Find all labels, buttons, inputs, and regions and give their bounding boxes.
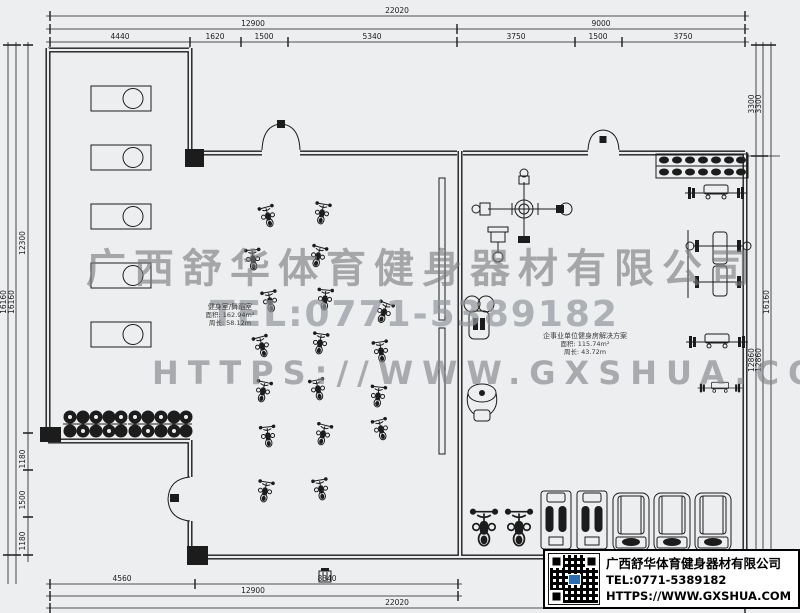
squat-machine-icon [541, 491, 571, 549]
dumbbell-rack-icon [656, 154, 748, 178]
dim-label: 4560 [112, 574, 131, 583]
dim-label: 1620 [205, 32, 224, 41]
room-name: 健身室/舞蹈室 [192, 303, 268, 311]
dim-label: 4440 [110, 32, 129, 41]
squat-machine-icon [577, 491, 607, 549]
panel-company-name: 广西舒华体育健身器材有限公司 [606, 555, 791, 572]
room-perimeter: 周长: 43.72m [520, 348, 650, 356]
dim-label: 3750 [673, 32, 692, 41]
room-label-gym: 企事业单位健身房解决方案 面积: 115.74m² 周长: 43.72m [520, 332, 650, 356]
treadmill-icon [695, 493, 731, 551]
elliptical-icon [467, 384, 497, 421]
door-swing-icon [262, 120, 300, 150]
dim-label: 1500 [588, 32, 607, 41]
dumbbell-rack-icon [63, 411, 128, 438]
dumbbell-rack-icon [128, 411, 193, 438]
dim-label: 12860 [754, 348, 763, 372]
walls [48, 48, 747, 557]
dimension-lines [3, 11, 780, 613]
dim-label: 5340 [362, 32, 381, 41]
room-area: 面积: 162.94m² [192, 311, 268, 319]
room-name: 企事业单位健身房解决方案 [520, 332, 650, 340]
dim-label: 12900 [241, 19, 265, 28]
floor-plan-svg: 22020 12900 9000 4440 1620 1500 5340 375… [0, 0, 800, 613]
barbell-bench-icon [698, 382, 743, 392]
barbell-bench-icon [685, 185, 747, 199]
treadmill-icon [613, 493, 649, 551]
dim-label: 3750 [506, 32, 525, 41]
dim-label: 3300 [754, 94, 763, 113]
column-icon [185, 149, 204, 167]
dim-label: 1500 [254, 32, 273, 41]
dim-label: 1180 [18, 531, 27, 550]
spin-bike-icons [244, 201, 396, 503]
company-info-panel: 广西舒华体育健身器材有限公司 TEL:0771-5389182 HTTPS://… [543, 549, 800, 609]
room-area: 面积: 115.74m² [520, 340, 650, 348]
upright-bike-icon [470, 509, 498, 546]
lat-pulldown-icon [488, 227, 508, 262]
panel-website: HTTPS://WWW.GXSHUA.COM [606, 588, 791, 604]
dim-label: 22020 [385, 6, 409, 15]
barbell-bench-icon [686, 334, 748, 348]
door-swing-icon [588, 130, 619, 150]
dim-label: 16160 [762, 290, 771, 314]
dim-label: 1180 [18, 449, 27, 468]
room-label-spin: 健身室/舞蹈室 面积: 162.94m² 周长: 58.12m [192, 303, 268, 327]
upright-bike-icon [505, 509, 533, 546]
treadmill-icon [91, 86, 151, 347]
dim-label: 12300 [18, 231, 27, 255]
mirror-icon [439, 328, 445, 454]
qr-code-icon [548, 553, 600, 605]
bench-press-station-icon [686, 230, 751, 298]
dim-label: 16160 [7, 290, 16, 314]
mirror-icon [439, 178, 445, 320]
dim-label: 12900 [241, 586, 265, 595]
dim-label: 9000 [591, 19, 610, 28]
door-swing-icon [168, 477, 190, 521]
panel-tel: TEL:0771-5389182 [606, 572, 791, 588]
multi-station-icon [472, 169, 572, 243]
pec-deck-icon [464, 296, 494, 339]
dim-label: 1500 [18, 490, 27, 509]
dim-label: 22020 [385, 598, 409, 607]
floor-plan-canvas: 22020 12900 9000 4440 1620 1500 5340 375… [0, 0, 800, 613]
treadmill-icon [654, 493, 690, 551]
column-icon [40, 427, 61, 442]
column-icon [187, 546, 208, 565]
room-perimeter: 周长: 58.12m [192, 319, 268, 327]
